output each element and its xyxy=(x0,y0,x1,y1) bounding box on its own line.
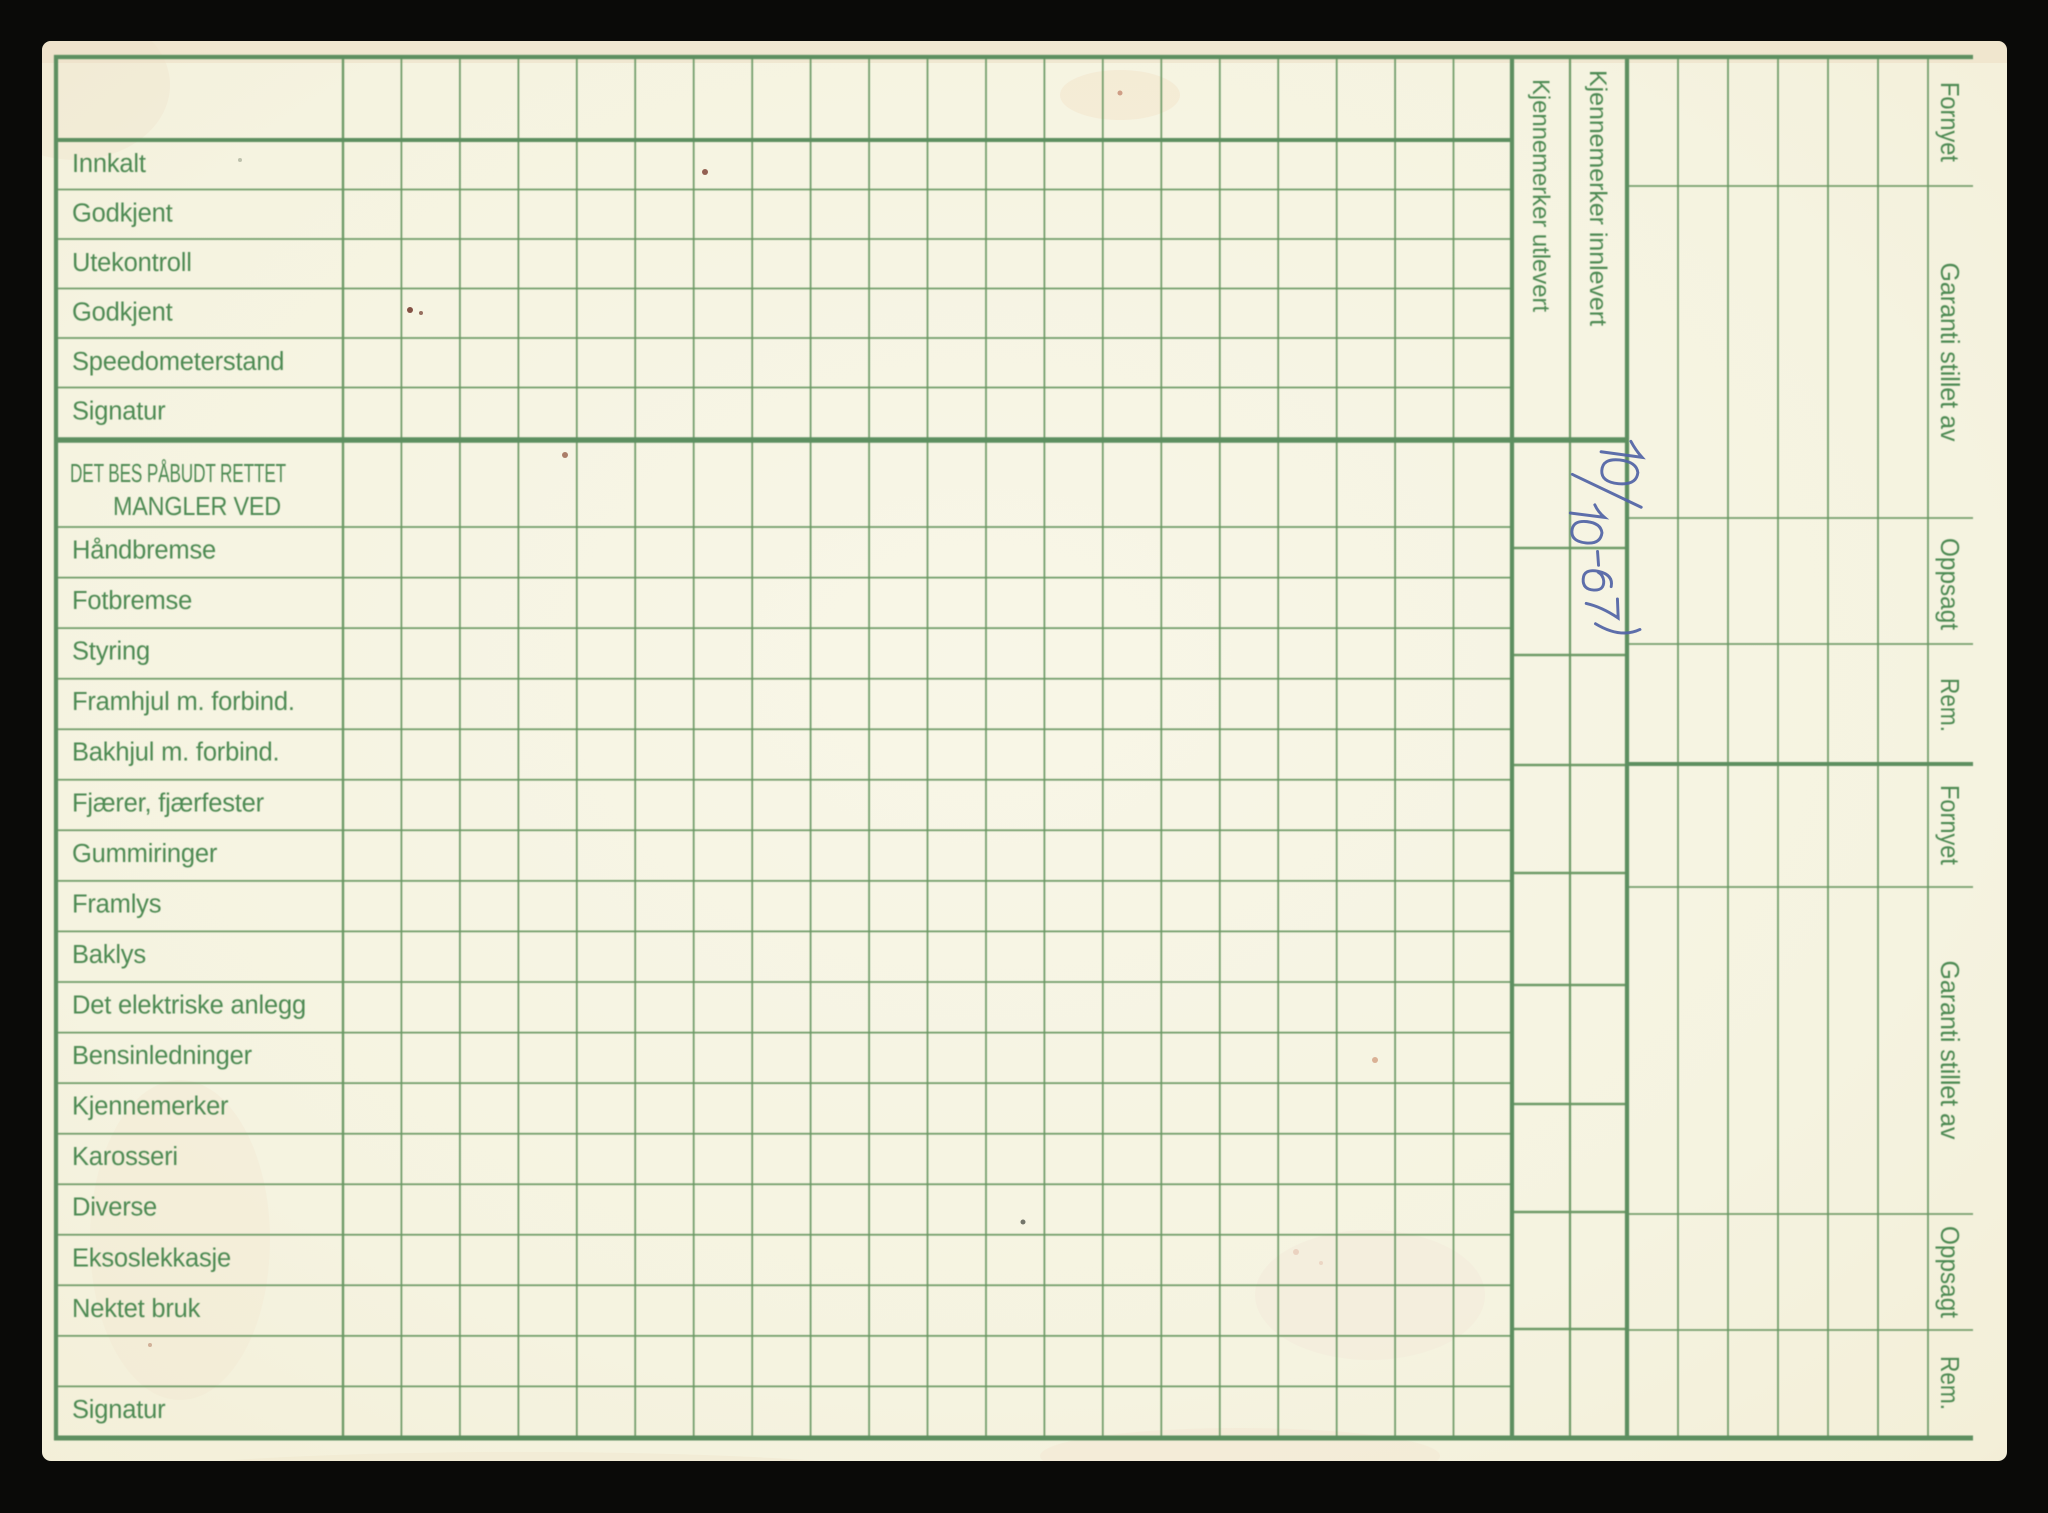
svg-text:Signatur: Signatur xyxy=(72,1396,166,1424)
svg-text:Oppsagt: Oppsagt xyxy=(1935,538,1965,631)
svg-text:Nektet bruk: Nektet bruk xyxy=(72,1295,201,1323)
svg-text:Innkalt: Innkalt xyxy=(72,150,146,178)
svg-text:Det elektriske anlegg: Det elektriske anlegg xyxy=(72,992,306,1020)
svg-text:Baklys: Baklys xyxy=(72,941,146,969)
svg-text:Framlys: Framlys xyxy=(72,890,161,918)
svg-text:Fotbremse: Fotbremse xyxy=(72,587,192,615)
svg-text:Fornyet: Fornyet xyxy=(1935,82,1965,163)
svg-text:Godkjent: Godkjent xyxy=(72,299,173,327)
svg-text:MANGLER VED: MANGLER VED xyxy=(113,493,281,521)
svg-text:Framhjul m. forbind.: Framhjul m. forbind. xyxy=(72,688,295,716)
svg-text:Kjennemerker utlevert: Kjennemerker utlevert xyxy=(1527,79,1554,312)
svg-text:Utekontroll: Utekontroll xyxy=(72,249,192,277)
svg-text:Håndbremse: Håndbremse xyxy=(72,537,216,565)
svg-text:Speedometerstand: Speedometerstand xyxy=(72,348,284,376)
svg-text:Fjærer, fjærfester: Fjærer, fjærfester xyxy=(72,789,265,817)
svg-text:Gummiringer: Gummiringer xyxy=(72,840,218,868)
svg-text:Garanti stillet av: Garanti stillet av xyxy=(1935,263,1965,442)
svg-text:DET BES PÅBUDT RETTET: DET BES PÅBUDT RETTET xyxy=(70,458,286,488)
svg-text:Kjennemerker innlevert: Kjennemerker innlevert xyxy=(1584,70,1611,326)
svg-text:Bensinledninger: Bensinledninger xyxy=(72,1042,253,1070)
svg-text:Styring: Styring xyxy=(72,638,150,666)
svg-text:Godkjent: Godkjent xyxy=(72,200,173,228)
svg-text:Diverse: Diverse xyxy=(72,1194,157,1222)
svg-text:Bakhjul m. forbind.: Bakhjul m. forbind. xyxy=(72,739,279,767)
svg-text:Fornyet: Fornyet xyxy=(1935,785,1965,866)
svg-text:Rem.: Rem. xyxy=(1935,678,1965,732)
svg-text:Kjennemerker: Kjennemerker xyxy=(72,1093,229,1121)
svg-text:Oppsagt: Oppsagt xyxy=(1935,1226,1965,1319)
svg-text:Rem.: Rem. xyxy=(1935,1356,1965,1410)
svg-text:Signatur: Signatur xyxy=(72,398,166,426)
svg-text:Garanti stillet av: Garanti stillet av xyxy=(1935,961,1965,1140)
svg-text:Karosseri: Karosseri xyxy=(72,1143,178,1171)
svg-text:Eksoslekkasje: Eksoslekkasje xyxy=(72,1244,231,1272)
